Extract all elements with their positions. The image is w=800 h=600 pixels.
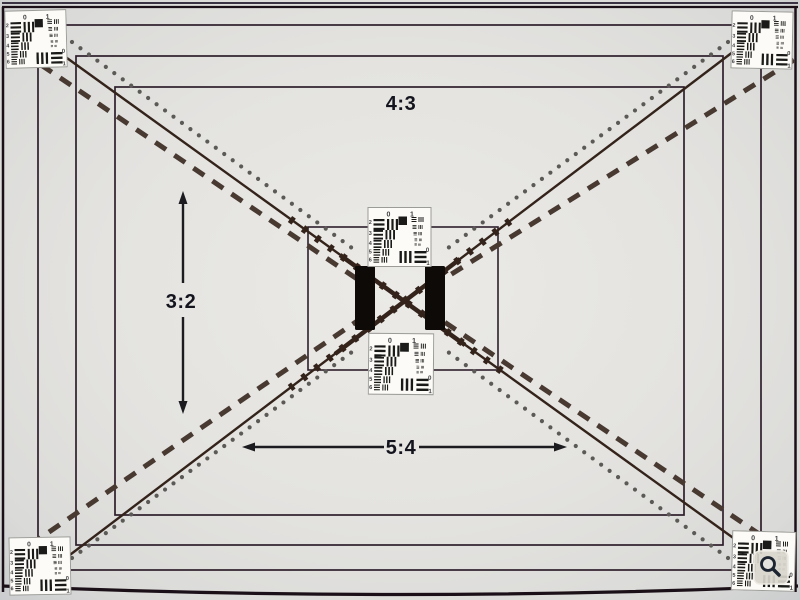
aspect-label-3-2: 3:2: [166, 291, 196, 313]
usaf-target-top-right: [731, 11, 793, 70]
test-chart-canvas: 0 1 2 3 4 5 6: [0, 0, 800, 600]
lens-test-chart-photo: 0 1 2 3 4 5 6: [0, 0, 800, 600]
usaf-target-center-bottom: [368, 333, 434, 395]
usaf-target-bottom-left: [9, 537, 71, 596]
usaf-target-top-left: [5, 10, 68, 69]
aspect-label-4-3: 4:3: [386, 93, 416, 115]
usaf-target-center-top: [368, 208, 431, 268]
center-black-bar-right: [425, 266, 445, 330]
center-black-bar-left: [355, 266, 375, 330]
aspect-label-5-4: 5:4: [386, 437, 417, 459]
magnifier-zoom-button[interactable]: [754, 551, 788, 584]
